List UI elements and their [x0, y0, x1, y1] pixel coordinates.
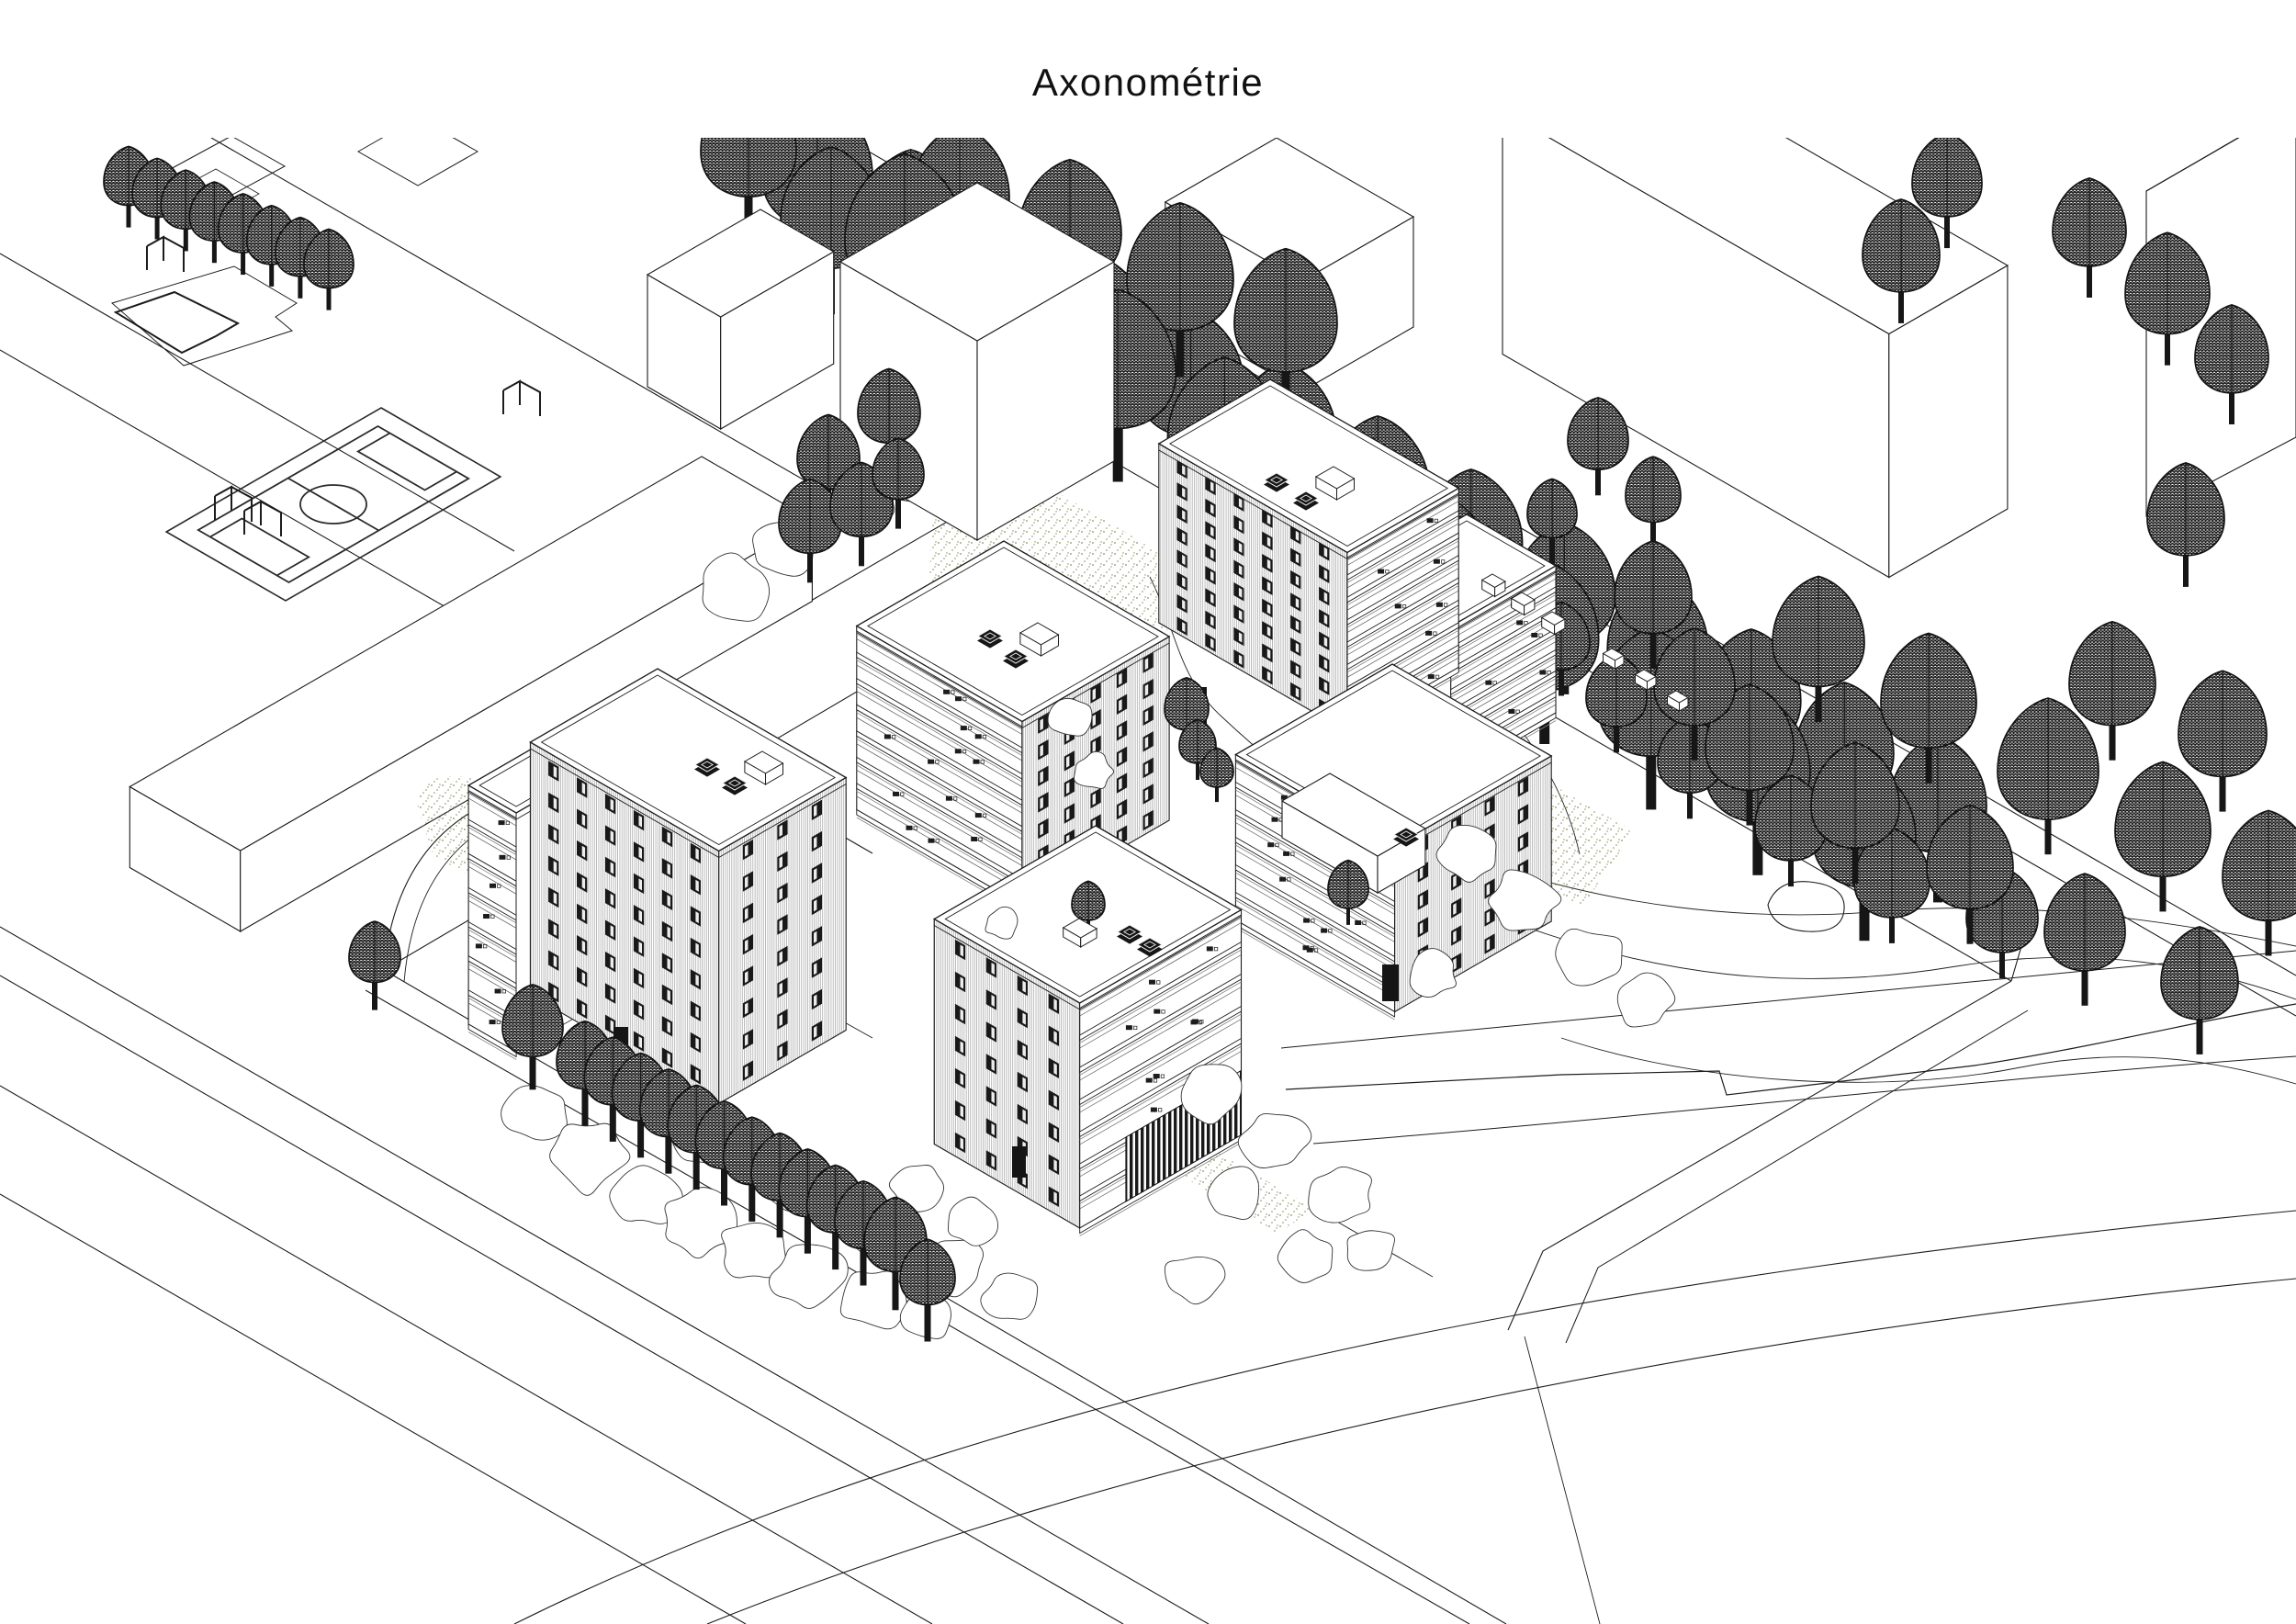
svg-text:Axonométrie: Axonométrie [1032, 61, 1264, 104]
